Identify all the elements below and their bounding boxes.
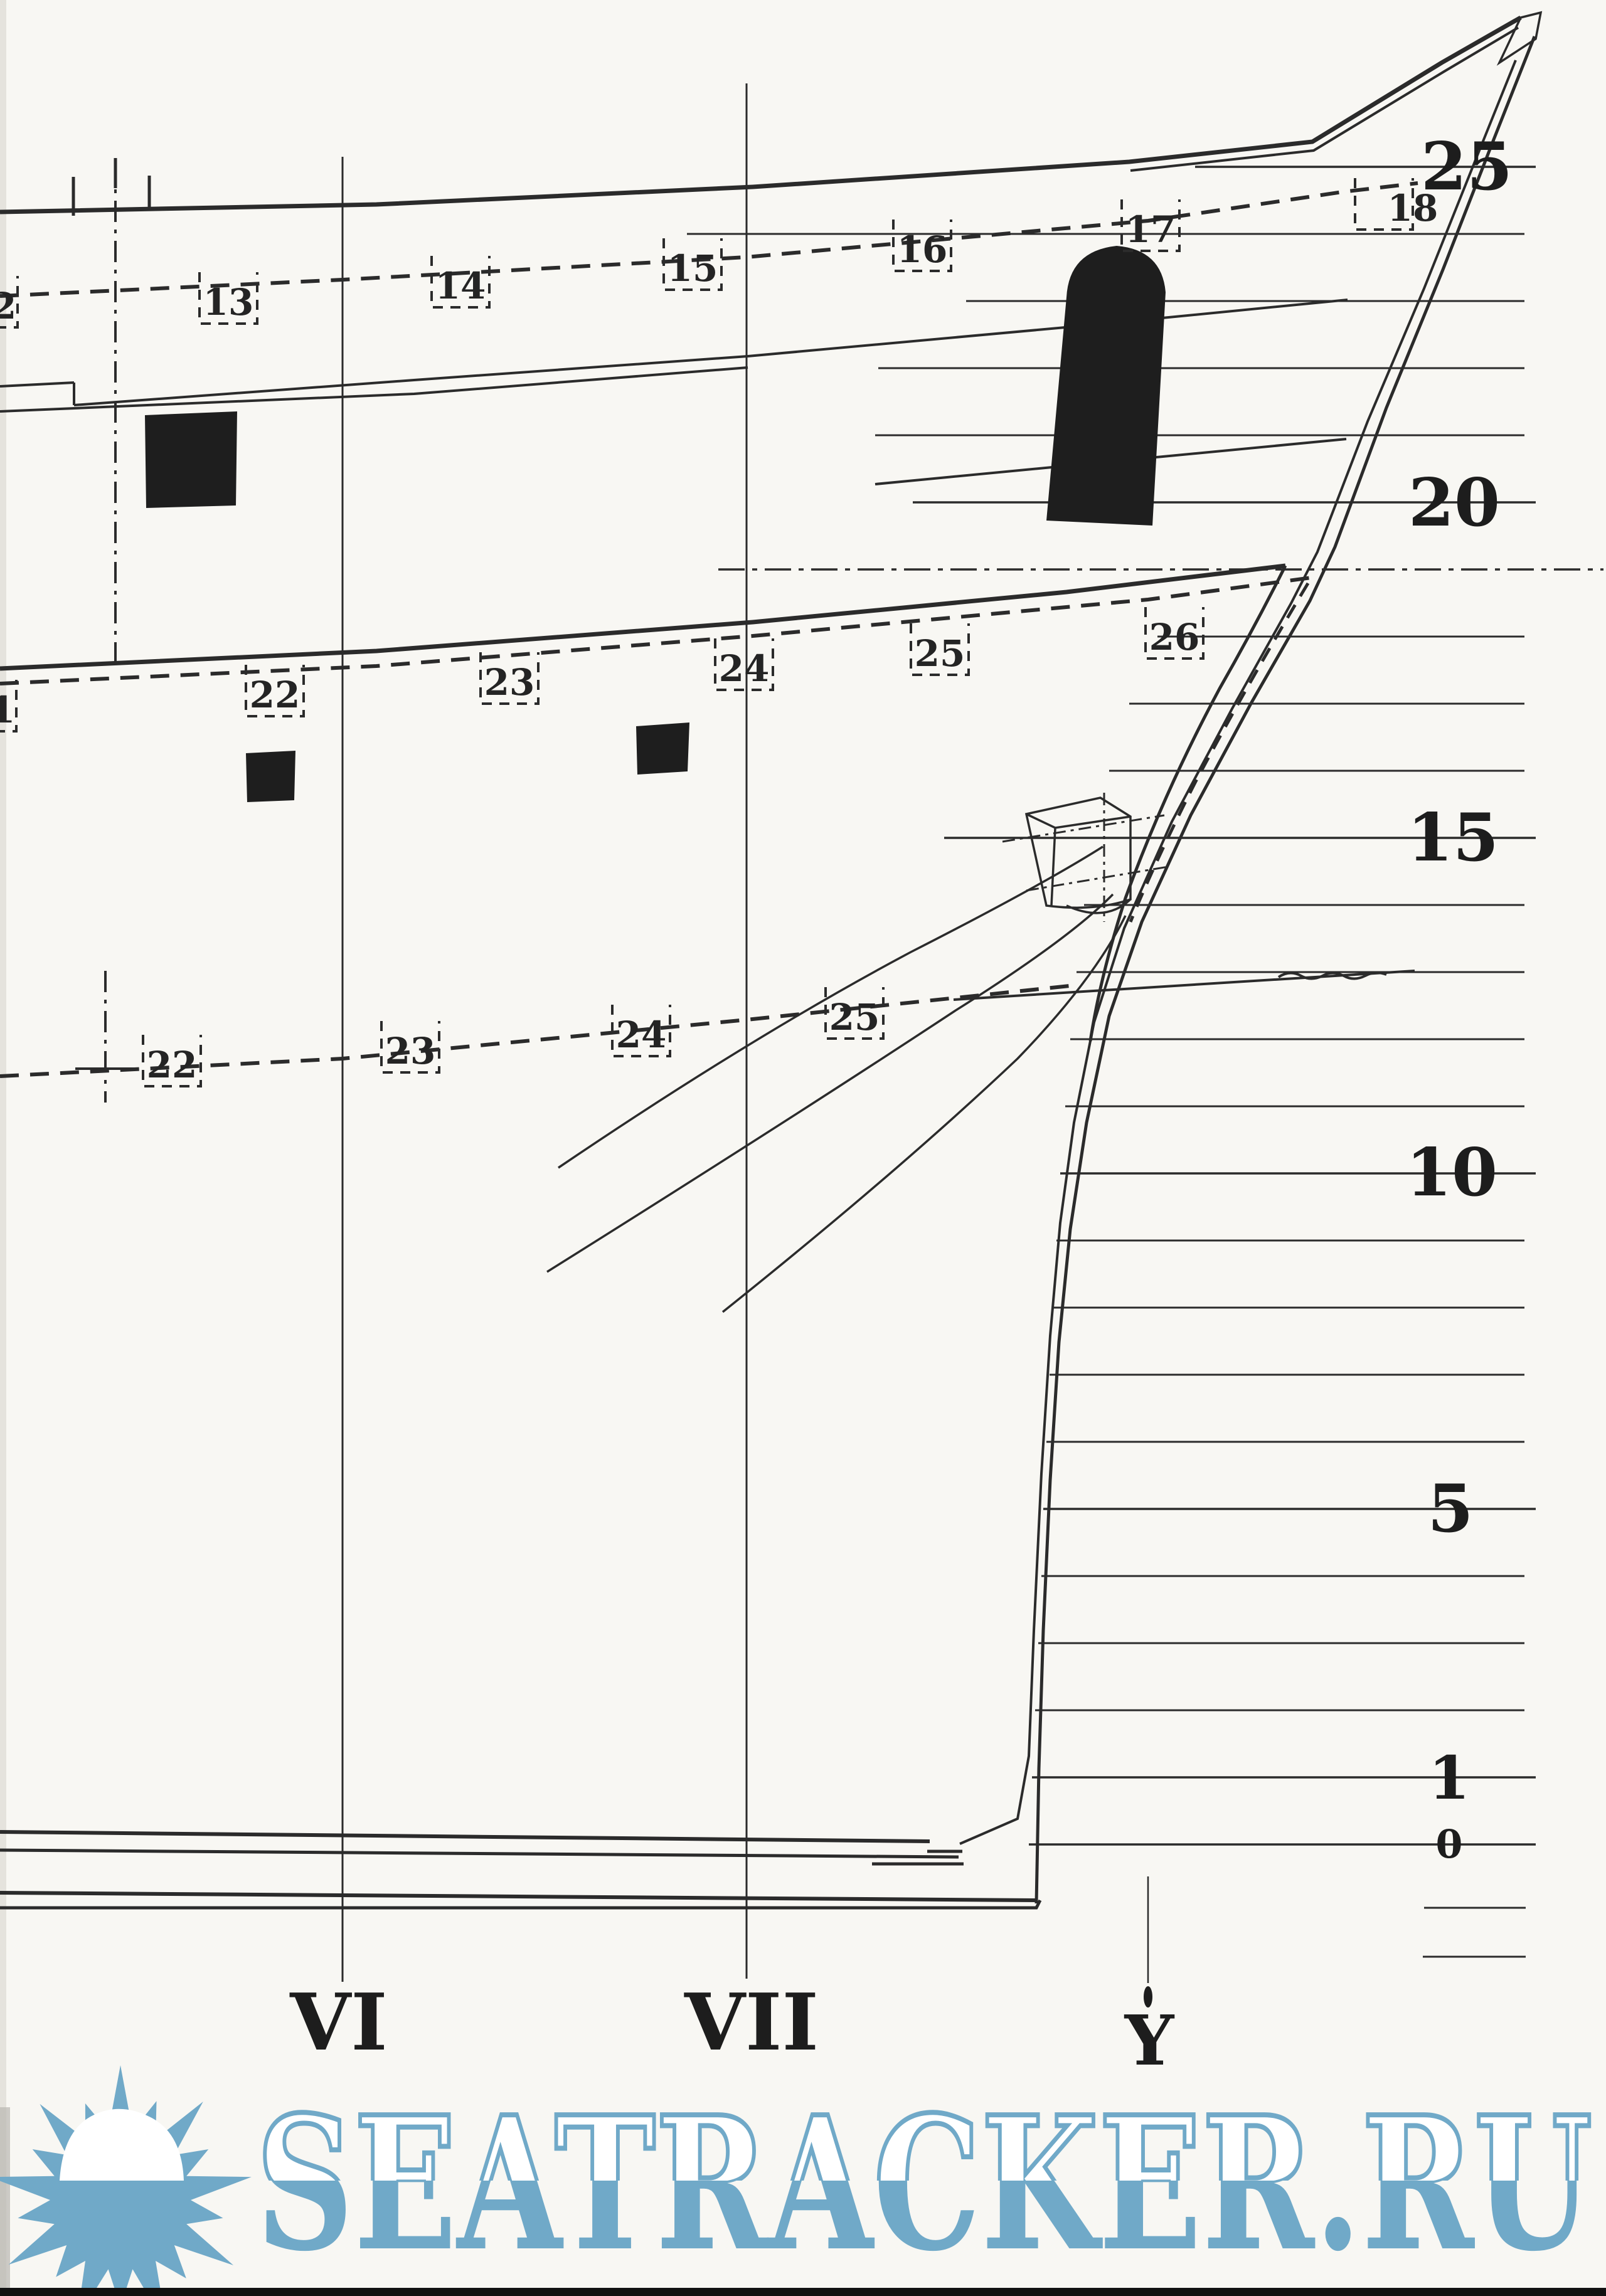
scale-20: 20 [1408,463,1500,541]
scale-10: 10 [1406,1133,1497,1211]
frame-label-24: 24 [719,647,770,690]
frame-label-17: 17 [1125,208,1176,251]
gun-port [246,751,295,802]
station-label-vi: VI [289,1977,387,2068]
scale-15: 15 [1407,798,1499,876]
stem-profile [960,36,1534,1903]
frame-labels-lower-row: 22 23 24 25 [143,987,883,1086]
scale-1: 1 [1428,1743,1470,1813]
frame-label-22: 22 [250,674,300,716]
rail-lines [0,13,1541,216]
frame-label-15: 15 [667,247,718,290]
station-label-vii: VII [684,1977,819,2068]
frame-label-16: 16 [897,228,948,271]
watermark-logo [0,2065,252,2296]
frame-label-2: 2 [0,285,16,327]
scan-bottom-edge [0,2288,1606,2296]
frame-label-25b: 25 [829,996,880,1039]
frame-label-25: 25 [915,632,965,675]
frame-label-14: 14 [435,265,486,307]
load-waterline [954,971,1415,1000]
gun-port [636,722,689,775]
black-fittings [145,246,1166,802]
scan-left-edge-bottom [0,2107,10,2296]
watermark-wordmark: SEATRACKER.RU SEATRACKER.RU [256,2076,1592,2292]
frame-label-24b: 24 [616,1013,667,1056]
frame-label-23b: 23 [385,1030,436,1072]
reference-dash-dot-vertical [105,161,115,1103]
scale-0: 0 [1435,1821,1462,1867]
station-label-y: Y [1124,2000,1175,2081]
frame-labels-middle-row: 1 22 23 24 25 26 [0,607,1203,731]
head-rails [547,847,1125,1312]
scale-5: 5 [1427,1469,1473,1547]
frame-label-1: 1 [0,689,15,731]
scanned-plan-page: 2 13 14 15 16 17 18 1 22 23 24 25 26 22 … [0,0,1606,2296]
bowsprit [1046,246,1166,526]
frame-labels-upper-row: 2 13 14 15 16 17 18 [0,178,1438,327]
sun-dome [60,2109,184,2181]
scale-25: 25 [1421,127,1513,205]
frame-label-23: 23 [484,661,535,704]
keel-lines [0,1832,1040,1908]
frame-label-22b: 22 [147,1044,198,1086]
frame-label-26: 26 [1149,616,1200,659]
draft-scale-numbers: 25 20 15 10 5 1 0 [1406,127,1513,1867]
frame-label-13: 13 [203,281,254,324]
ship-plan-drawing: 2 13 14 15 16 17 18 1 22 23 24 25 26 22 … [0,0,1606,2296]
scan-left-edge [0,0,6,2296]
station-labels: VI VII Y [289,1977,1174,2081]
gun-port [145,411,237,508]
